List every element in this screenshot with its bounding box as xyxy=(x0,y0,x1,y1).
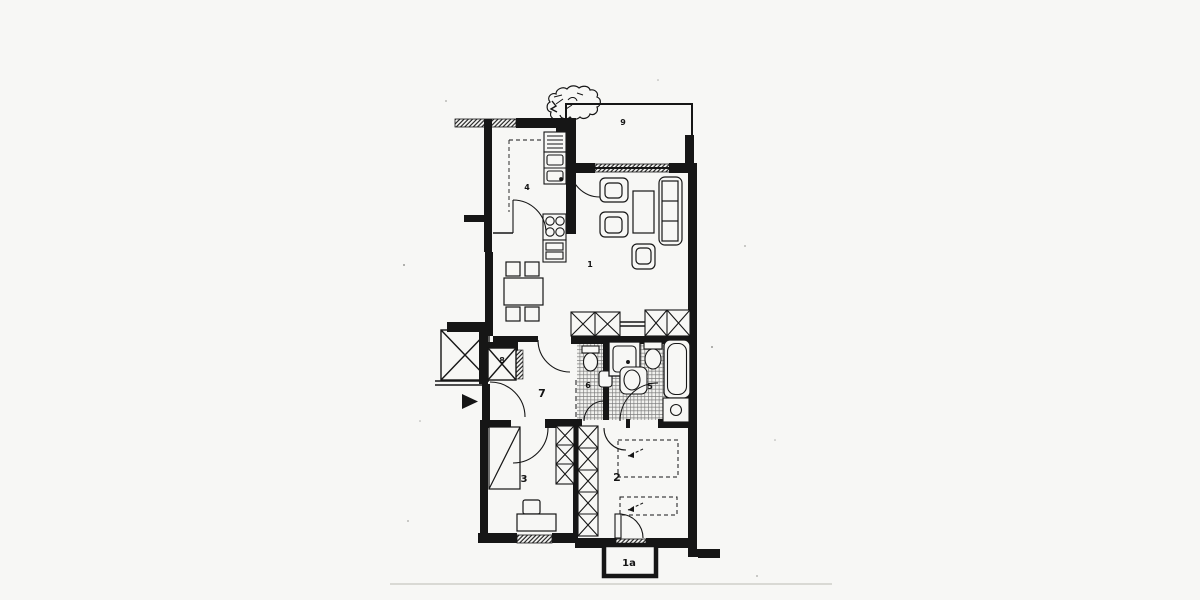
shaft-access-panel xyxy=(516,350,523,379)
room-label-living: 1 xyxy=(587,260,593,269)
bath-sink xyxy=(620,367,647,394)
room-label-wc: 6 xyxy=(585,381,591,390)
room-label-balcony-upper: 9 xyxy=(620,118,626,127)
paper-background xyxy=(0,0,1200,600)
bed-left xyxy=(489,427,520,489)
desk-chair xyxy=(523,500,540,514)
dining-table xyxy=(504,278,543,305)
bath-toilet xyxy=(644,342,662,369)
washing-machine xyxy=(663,398,689,422)
dining-chair xyxy=(506,307,520,321)
room-label-bathroom: 5 xyxy=(647,382,653,391)
armchair-2 xyxy=(600,212,628,237)
kitchen-drawer-unit xyxy=(543,240,566,262)
wc-toilet xyxy=(582,346,599,371)
room-label-bedroom-right: 2 xyxy=(613,471,621,484)
armchair-3 xyxy=(632,244,655,269)
room-label-balcony-lower: 1a xyxy=(622,558,636,569)
room-label-kitchen: 4 xyxy=(524,183,530,192)
room-label-bedroom-left: 3 xyxy=(521,474,528,485)
floor-plan-page: 1 1a 2 3 4 5 6 7 8 9 xyxy=(0,0,1200,600)
wardrobe-living-left xyxy=(571,312,620,336)
room-label-shaft: 8 xyxy=(499,356,505,365)
bathtub xyxy=(664,340,690,398)
dining-chair xyxy=(506,262,520,276)
wardrobe-living-right xyxy=(645,310,690,336)
sofa xyxy=(659,177,682,245)
dining-chair xyxy=(525,262,539,276)
coffee-table xyxy=(633,191,654,233)
floor-plan: 1 1a 2 3 4 5 6 7 8 9 xyxy=(0,0,1200,600)
desk xyxy=(517,514,556,531)
armchair-1 xyxy=(600,178,628,202)
wardrobe-column-bedroom-right xyxy=(578,426,598,536)
dining-chair xyxy=(525,307,539,321)
wardrobe-column-bedroom-left xyxy=(556,426,574,484)
kitchen-stove xyxy=(543,214,566,240)
bedroom-left-window xyxy=(517,535,552,543)
kitchen-sink-unit xyxy=(544,152,566,184)
kitchen-shelf-unit xyxy=(544,132,566,152)
room-label-hallway: 7 xyxy=(538,387,546,400)
